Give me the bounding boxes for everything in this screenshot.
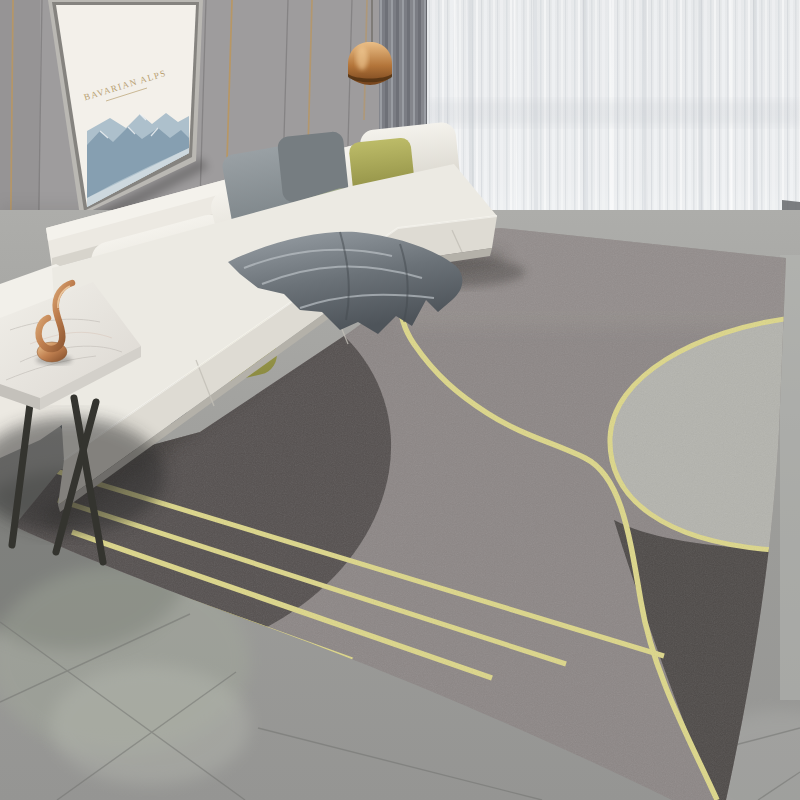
- sheer-shade-band: [427, 100, 800, 126]
- lamp-highlight: [356, 46, 368, 70]
- scene-canvas: BAVARIAN ALPS: [0, 0, 800, 800]
- living-room-photo: BAVARIAN ALPS: [0, 0, 800, 800]
